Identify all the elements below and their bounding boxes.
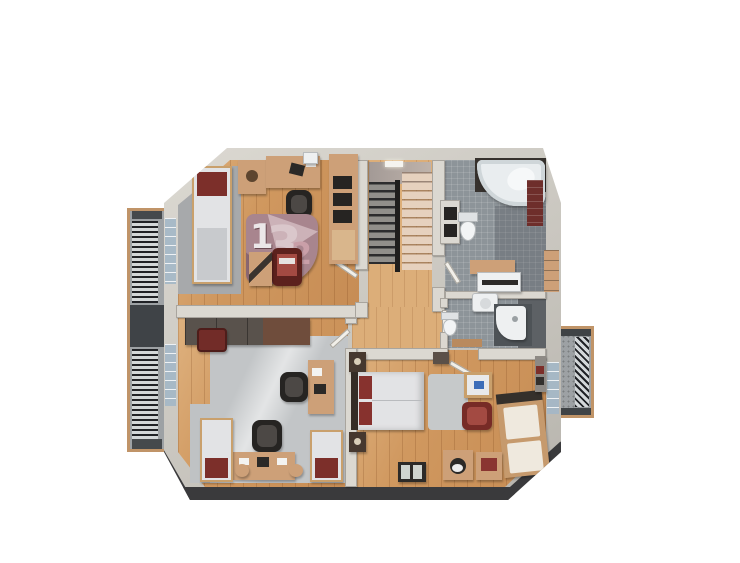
pet-bed-cushion xyxy=(476,452,502,480)
kids-room-window xyxy=(165,218,176,284)
kids-wardrobe xyxy=(329,154,358,264)
printer xyxy=(303,152,318,164)
armchair-seat xyxy=(467,407,487,425)
balcony-cap-bottom xyxy=(561,408,591,415)
wall-wc-corridor-upper xyxy=(440,298,448,308)
study-stool-right xyxy=(289,464,303,477)
bed-pillow-top xyxy=(359,376,372,399)
study-chair-b xyxy=(252,420,282,452)
niche-shelf-upper xyxy=(444,207,457,220)
balcony-planter-bottom xyxy=(132,439,162,449)
balcony-left xyxy=(127,208,167,452)
wardrobe-panel-2 xyxy=(333,193,352,206)
pet-bed-cat xyxy=(443,450,473,480)
balcony-railing-right xyxy=(575,337,589,407)
balcony-railing-lower xyxy=(132,349,158,439)
wardrobe-panel-3 xyxy=(333,210,352,223)
wc-toilet xyxy=(441,312,459,336)
staircase-railing xyxy=(395,180,400,272)
cat xyxy=(452,464,463,472)
study-sofa xyxy=(197,328,227,352)
wall-niche-shelf xyxy=(544,250,559,292)
wall-study-master-stub xyxy=(345,318,357,324)
wall-kids-hall-lower xyxy=(355,302,368,318)
study-desk-side xyxy=(308,360,334,414)
nightstand-b xyxy=(349,432,366,452)
kids-armchair xyxy=(272,248,302,286)
toilet-bowl xyxy=(460,221,476,241)
wc-mat xyxy=(452,339,482,347)
ceiling-light xyxy=(385,161,403,167)
washer-slot xyxy=(482,280,518,285)
wardrobe-panel-1 xyxy=(333,176,352,189)
crib xyxy=(464,372,492,398)
armchair-blanket xyxy=(279,258,295,264)
bathroom-partition xyxy=(440,200,460,244)
wardrobe-lower-front xyxy=(332,230,355,260)
staircase-flight-right xyxy=(402,172,432,270)
wardrobe-wood-section xyxy=(263,318,310,345)
balcony-railing-upper xyxy=(132,221,158,303)
crib-toy xyxy=(474,381,484,389)
frame-panel-right xyxy=(413,465,422,479)
niche-shelf-lower xyxy=(444,224,457,237)
bed-pillow-bottom xyxy=(359,402,372,425)
nightstand-a xyxy=(349,352,366,372)
plant-pot xyxy=(246,170,258,182)
lamp xyxy=(354,438,361,445)
building-footprint: 3 1 2 xyxy=(163,146,562,502)
brick-accent-wall xyxy=(527,180,543,226)
mattress-seam xyxy=(372,400,422,401)
bed-pillow xyxy=(205,458,228,478)
rug-number-1: 1 xyxy=(250,220,274,254)
toy-box xyxy=(249,252,272,286)
shelf-dark-item xyxy=(536,377,544,385)
balcony-planter-top xyxy=(132,211,162,219)
staircase-flight-left xyxy=(369,182,395,264)
bed-blanket xyxy=(197,228,227,280)
paper-sheet xyxy=(312,368,322,376)
balcony-right xyxy=(558,326,594,418)
paper-sheet xyxy=(277,458,287,465)
master-bedroom-window xyxy=(547,362,559,414)
master-wardrobe xyxy=(496,390,551,478)
kids-single-bed xyxy=(192,166,232,284)
master-armchair xyxy=(462,402,492,430)
washing-machine xyxy=(477,272,521,292)
shower-drain xyxy=(512,316,518,322)
bathroom-toilet xyxy=(458,212,478,242)
master-wall-shelf xyxy=(433,352,449,364)
study-room-window xyxy=(165,344,176,406)
wardrobe-door-upper xyxy=(503,404,540,439)
lamp xyxy=(354,358,361,365)
sink-bowl xyxy=(480,298,491,309)
toilet-bowl xyxy=(443,319,457,336)
study-bed-right xyxy=(310,430,343,482)
floor-plan-scene: 3 1 2 xyxy=(0,0,740,563)
frame-panel-left xyxy=(401,465,410,479)
wardrobe-door-lower xyxy=(507,440,544,473)
kids-nightstand xyxy=(238,160,266,194)
laptop xyxy=(257,457,269,467)
desk-monitor xyxy=(314,384,326,394)
master-shelf-right xyxy=(535,356,546,392)
picture-frame xyxy=(398,462,426,482)
bed-pillow xyxy=(315,458,338,478)
balcony-cap-top xyxy=(561,329,591,336)
study-bed-left xyxy=(200,418,233,482)
balcony-divider-box xyxy=(130,305,164,347)
shelf-red-item xyxy=(536,366,544,374)
wall-kids-study xyxy=(176,305,359,318)
study-stool-left xyxy=(235,464,249,477)
study-chair-a xyxy=(280,372,308,402)
laptop xyxy=(289,162,305,176)
roof-edge-bottom xyxy=(183,487,515,502)
bed-pillow xyxy=(197,172,227,196)
double-bed xyxy=(358,372,424,430)
cushion xyxy=(481,458,497,471)
